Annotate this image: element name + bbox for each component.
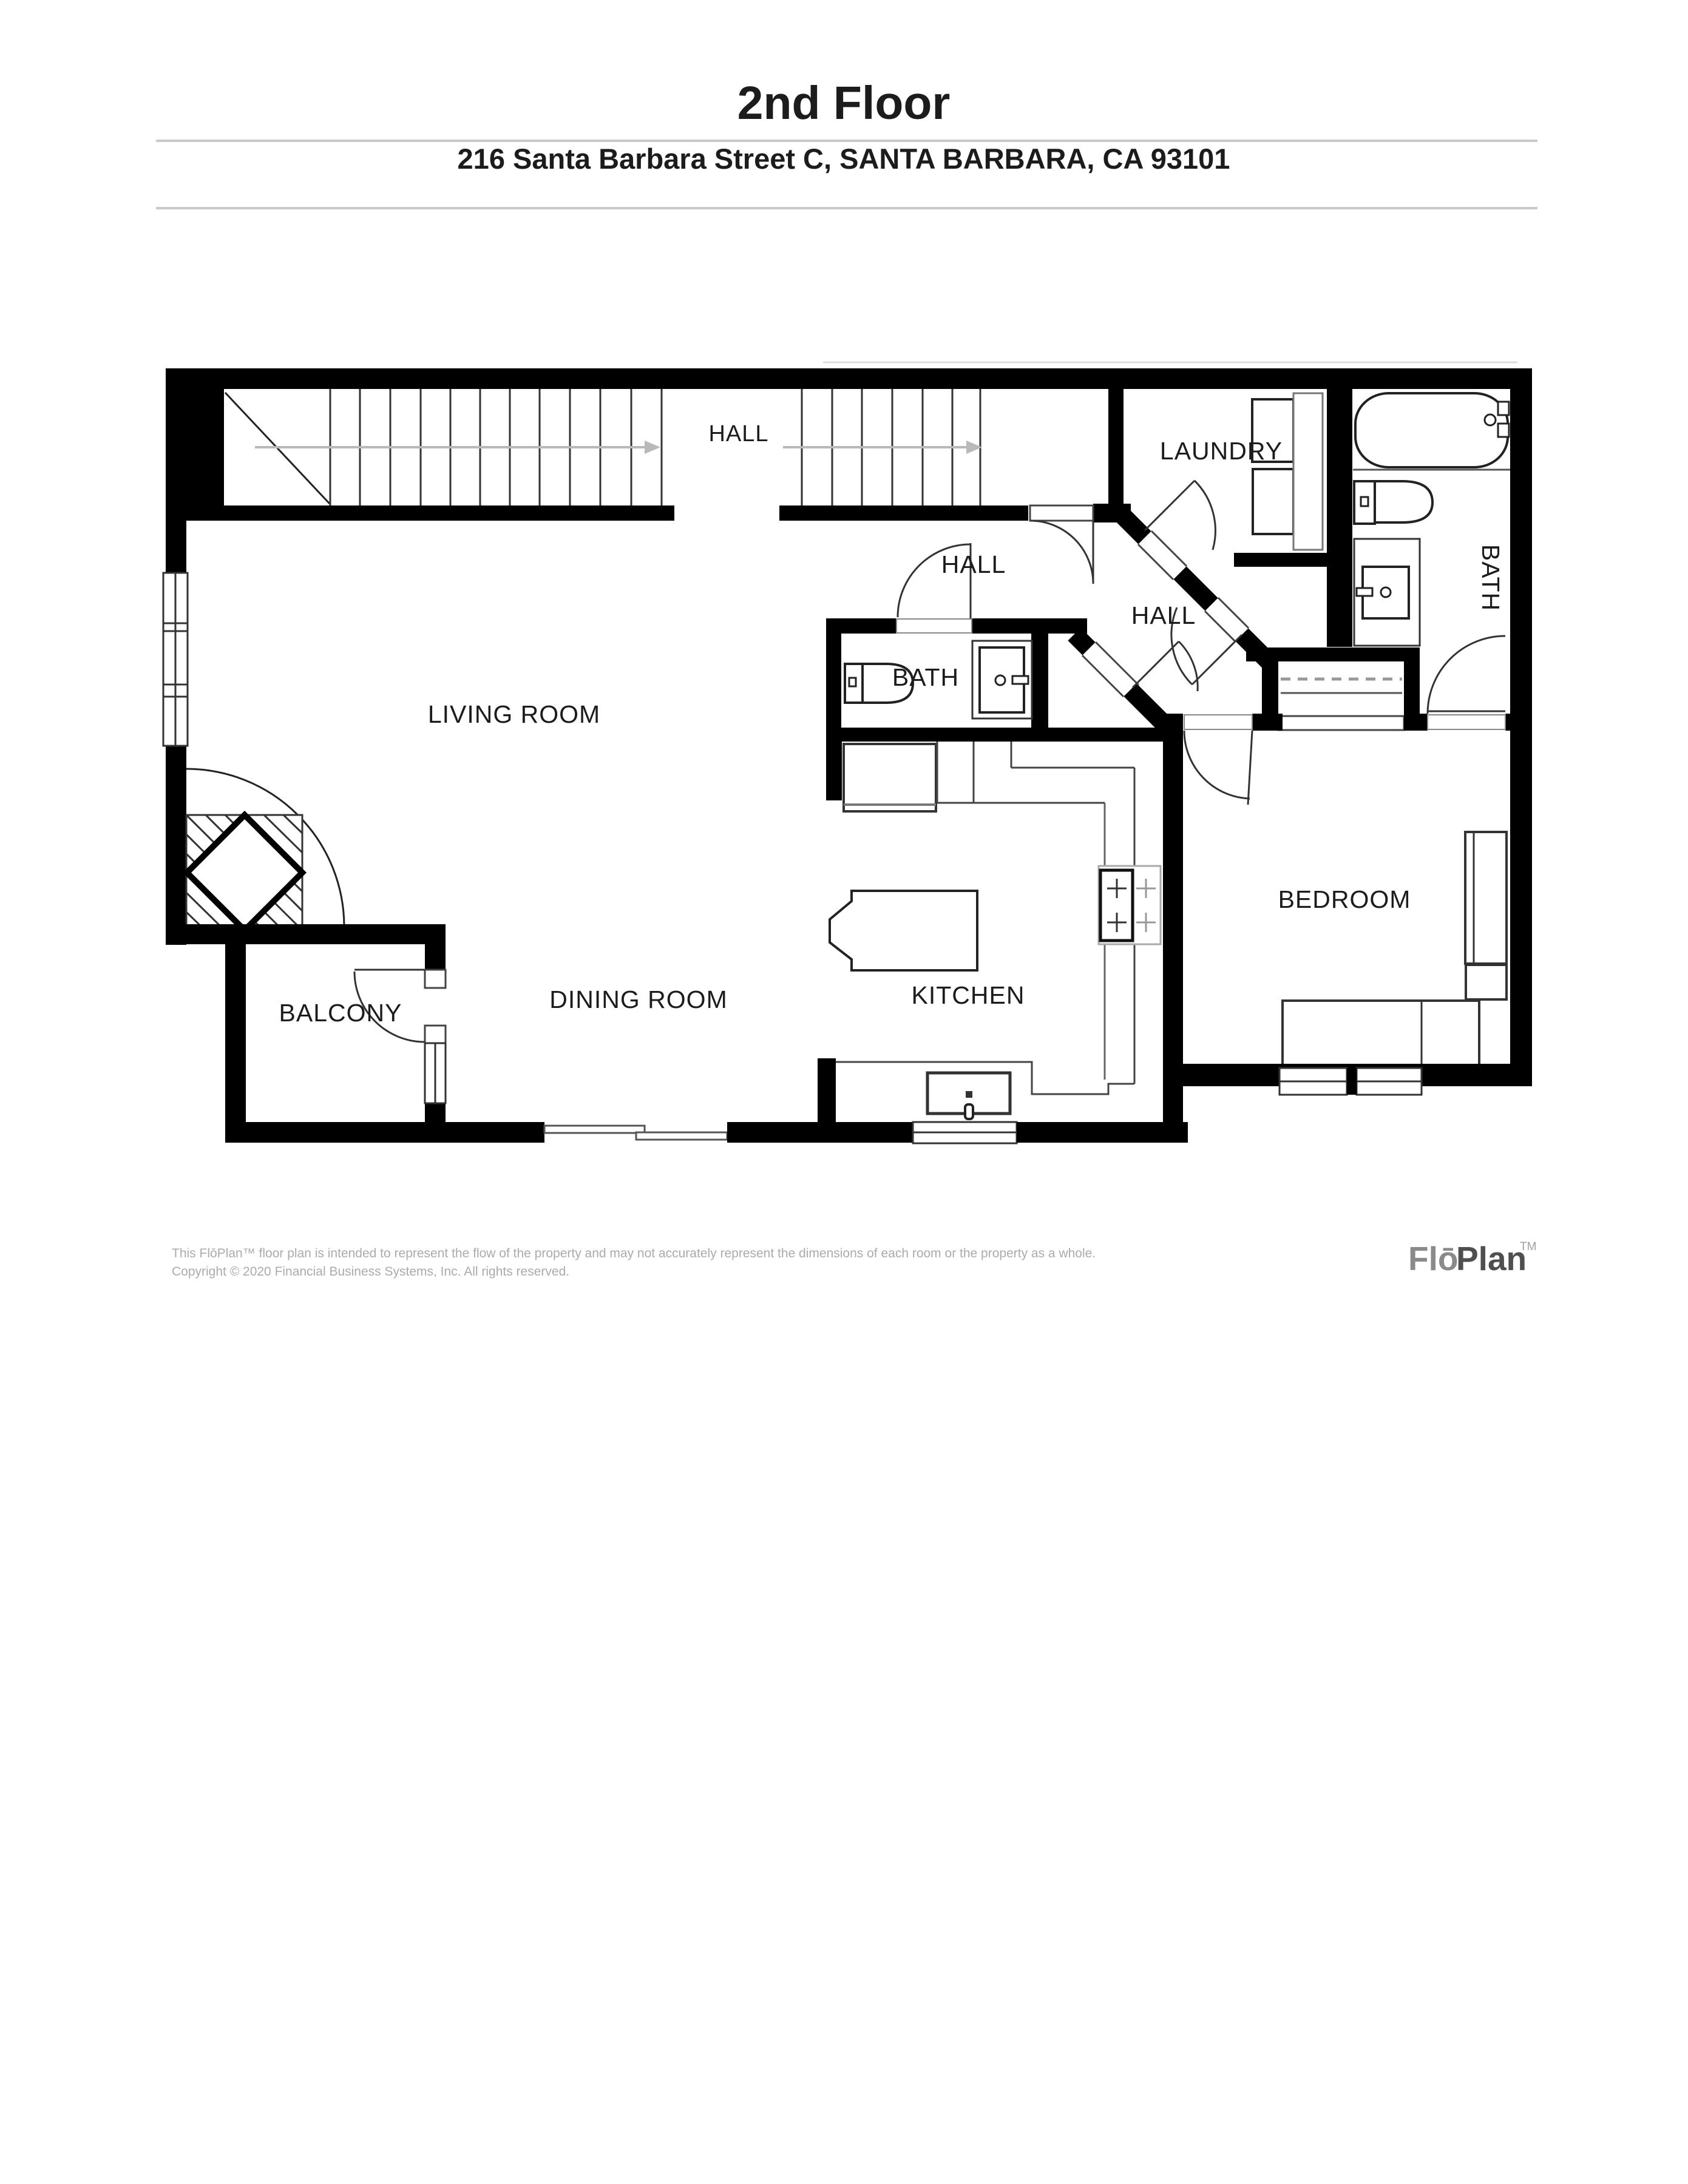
svg-text:2nd Floor: 2nd Floor xyxy=(737,77,951,129)
svg-text:HALL: HALL xyxy=(1131,601,1196,629)
svg-text:TM: TM xyxy=(1520,1240,1536,1253)
svg-text:HALL: HALL xyxy=(941,550,1006,578)
svg-text:DINING ROOM: DINING ROOM xyxy=(549,986,727,1013)
svg-text:Copyright © 2020 Financial Bus: Copyright © 2020 Financial Business Syst… xyxy=(172,1265,569,1279)
svg-text:LAUNDRY: LAUNDRY xyxy=(1160,437,1283,465)
svg-text:Plan: Plan xyxy=(1456,1240,1527,1277)
svg-text:BEDROOM: BEDROOM xyxy=(1278,885,1411,913)
svg-text:LIVING ROOM: LIVING ROOM xyxy=(428,700,600,728)
svg-text:This FlōPlan™ floor plan is in: This FlōPlan™ floor plan is intended to … xyxy=(172,1246,1096,1260)
svg-text:216 Santa Barbara Street C, SA: 216 Santa Barbara Street C, SANTA BARBAR… xyxy=(458,143,1230,175)
svg-text:BALCONY: BALCONY xyxy=(279,999,402,1027)
svg-text:HALL: HALL xyxy=(708,421,768,447)
svg-text:Flō: Flō xyxy=(1408,1240,1458,1277)
svg-text:KITCHEN: KITCHEN xyxy=(912,981,1025,1009)
svg-text:BATH: BATH xyxy=(1477,544,1505,611)
svg-text:BATH: BATH xyxy=(892,663,959,691)
